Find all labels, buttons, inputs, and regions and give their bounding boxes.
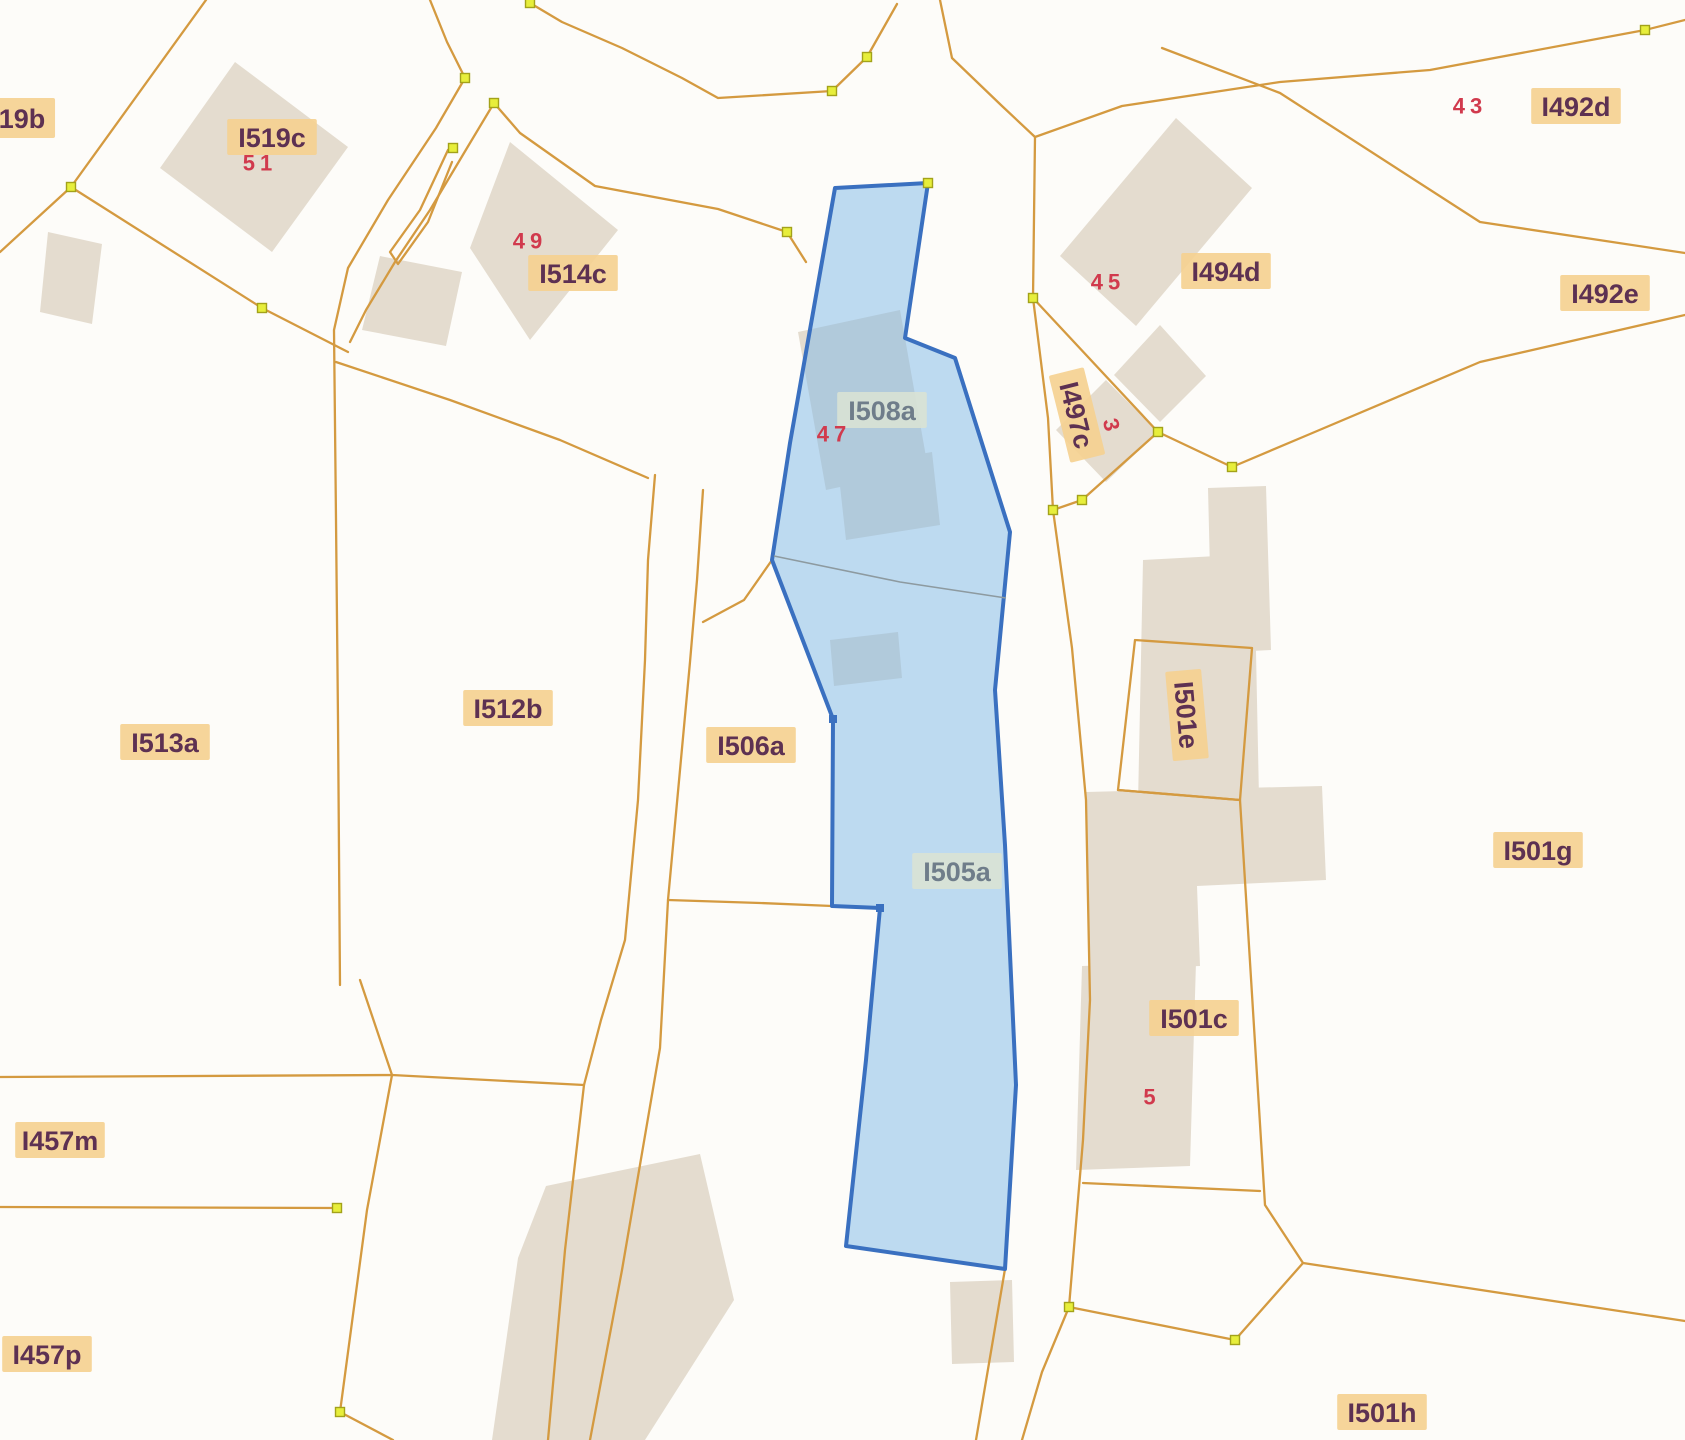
parcel-label-I501c[interactable]: I501c <box>1149 1000 1239 1036</box>
parcel-label-text: I501c <box>1160 1004 1228 1034</box>
house-number-text: 47 <box>817 422 851 447</box>
boundary-vertex-marker <box>1049 506 1058 515</box>
parcel-label-text: 19b <box>0 104 45 134</box>
boundary-vertex-marker <box>1078 496 1087 505</box>
boundary-vertex-marker <box>828 87 837 96</box>
parcel-label-I514c[interactable]: I514c <box>528 255 618 291</box>
parcel-label-I494d[interactable]: I494d <box>1181 253 1271 289</box>
house-number-text: 51 <box>243 151 277 176</box>
cadastral-map: 19bI519cI514cI508aI494dI497cI492dI492eI5… <box>0 0 1685 1440</box>
parcel-label-I457m[interactable]: I457m <box>15 1122 105 1158</box>
building-footprint <box>362 256 462 346</box>
boundary-vertex-marker <box>461 74 470 83</box>
boundary-vertex-marker <box>1228 463 1237 472</box>
boundary-vertex-marker <box>783 228 792 237</box>
boundary-vertex-marker <box>67 183 76 192</box>
building-footprint <box>1076 962 1196 1170</box>
cadastral-map-viewport[interactable]: 19bI519cI514cI508aI494dI497cI492dI492eI5… <box>0 0 1685 1440</box>
boundary-vertex-marker <box>1641 26 1650 35</box>
parcel-label-I513a[interactable]: I513a <box>120 724 210 760</box>
boundary-vertex-marker <box>1065 1303 1074 1312</box>
building-footprint <box>40 232 102 324</box>
parcel-label-text: I501h <box>1347 1398 1416 1428</box>
house-number-text: 43 <box>1453 94 1487 119</box>
boundary-vertex-marker <box>258 304 267 313</box>
boundary-vertex-marker <box>490 99 499 108</box>
boundary-vertex-marker <box>924 179 933 188</box>
boundary-vertex-marker <box>333 1204 342 1213</box>
boundary-vertex-marker <box>336 1408 345 1417</box>
boundary-vertex-marker <box>526 0 535 8</box>
selected-parcel-vertex <box>829 715 837 723</box>
parcel-label-I457p[interactable]: I457p <box>2 1336 92 1372</box>
parcel-label-I492e[interactable]: I492e <box>1560 275 1650 311</box>
boundary-vertex-marker <box>1231 1336 1240 1345</box>
parcel-label-text: I514c <box>539 259 607 289</box>
parcel-label-text: I508a <box>848 396 917 426</box>
parcel-label-I501h[interactable]: I501h <box>1337 1394 1427 1430</box>
house-number-text: 49 <box>513 229 547 254</box>
parcel-label-text: I492d <box>1541 92 1610 122</box>
parcel-label-text: I501e <box>1168 680 1204 750</box>
parcel-label-text: I494d <box>1191 257 1260 287</box>
parcel-label-text: I512b <box>473 694 542 724</box>
boundary-vertex-marker <box>449 144 458 153</box>
building-footprint <box>950 1280 1014 1364</box>
parcel-label-I501g[interactable]: I501g <box>1493 832 1583 868</box>
parcel-label-text: I519c <box>238 123 306 153</box>
parcel-label-text: I505a <box>923 857 992 887</box>
selected-parcel-vertex <box>876 904 884 912</box>
house-number-text: 5 <box>1143 1085 1160 1110</box>
parcel-label-I512b[interactable]: I512b <box>463 690 553 726</box>
parcel-label-I492d[interactable]: I492d <box>1531 88 1621 124</box>
parcel-label-text: I457m <box>22 1126 99 1156</box>
house-number-text: 45 <box>1091 270 1125 295</box>
parcel-label-text: I492e <box>1571 279 1639 309</box>
parcel-label-I506a[interactable]: I506a <box>706 727 796 763</box>
boundary-vertex-marker <box>1154 428 1163 437</box>
parcel-label-text: I506a <box>717 731 786 761</box>
parcel-boundary-line <box>0 1207 337 1208</box>
parcel-label-I505a[interactable]: I505a <box>912 853 1002 889</box>
parcel-label-19b[interactable]: 19b <box>0 98 55 138</box>
boundary-vertex-marker <box>1029 294 1038 303</box>
parcel-label-text: I513a <box>131 728 200 758</box>
parcel-label-text: I501g <box>1503 836 1572 866</box>
boundary-vertex-marker <box>863 53 872 62</box>
parcel-label-text: I457p <box>12 1340 81 1370</box>
